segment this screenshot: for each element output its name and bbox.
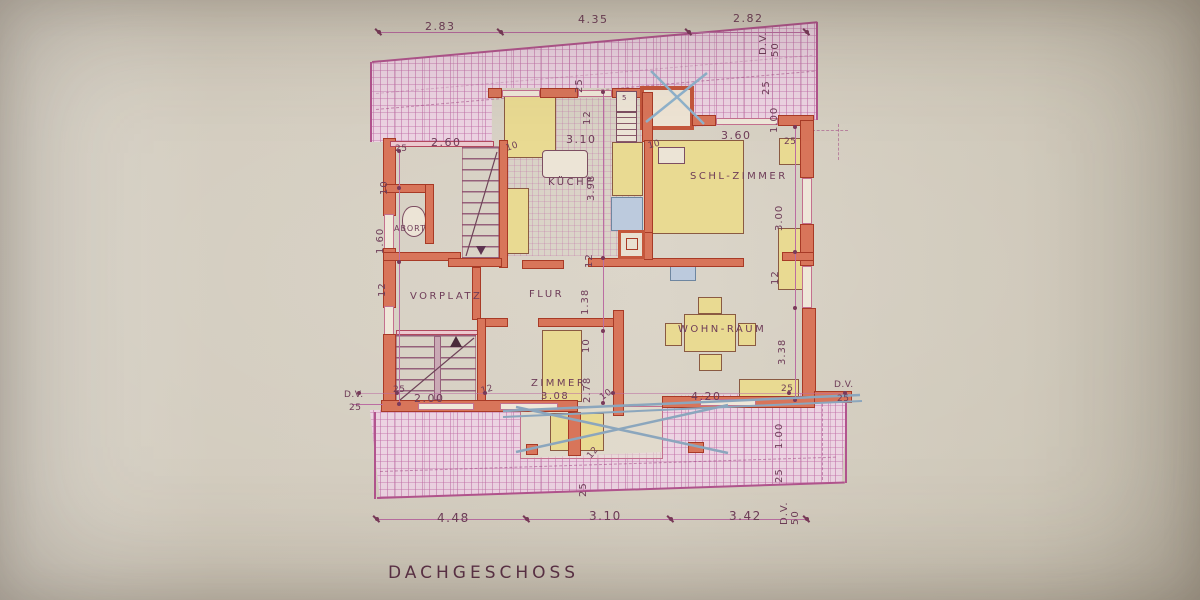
dim-label: 1.00 — [774, 423, 785, 449]
roof-edge-right — [816, 22, 818, 120]
wall-left — [383, 334, 396, 408]
dim-tick — [793, 250, 797, 254]
wall-right — [800, 120, 814, 178]
dim-label: 3.10 — [566, 133, 597, 146]
dim-tick — [793, 398, 797, 402]
wall-zimmer-top — [538, 318, 620, 327]
chair — [699, 354, 722, 371]
stove-door — [626, 238, 638, 250]
dim-tick — [601, 256, 605, 260]
wall-flur-north — [588, 258, 744, 267]
rug — [670, 266, 696, 281]
dim-label: 12 — [582, 110, 593, 125]
dim-label: 10 — [581, 338, 592, 353]
dashed-extent-line — [822, 394, 823, 480]
balcony-post — [568, 412, 581, 456]
dim-label: 12 — [377, 282, 388, 297]
dim-label: 3.38 — [777, 339, 788, 365]
roof-edge-bottom-right — [845, 392, 847, 483]
dim-label: 4.48 — [437, 511, 470, 525]
dim-label: 25 — [784, 137, 796, 147]
wall-kueche-top — [540, 88, 578, 98]
room-label-vorplatz: VORPLATZ — [410, 291, 482, 302]
room-label-wohnraum: WOHN-RAUM — [678, 324, 766, 335]
window — [384, 306, 394, 336]
dim-label: 1.38 — [580, 289, 591, 315]
wall-flur-north — [522, 260, 564, 269]
window — [802, 266, 812, 308]
dim-label: 25 — [349, 403, 361, 413]
shelf-count-label: 5 — [622, 94, 626, 102]
pantry-shelf — [616, 112, 637, 143]
kitchen-sink — [611, 197, 643, 231]
chair — [698, 297, 722, 314]
stairs-edge — [396, 330, 478, 335]
dim-label: 3.60 — [721, 129, 752, 142]
dim-label: 1.00 — [769, 107, 780, 133]
room-label-zimmer: ZIMMER — [531, 378, 586, 389]
dim-label: 25 — [393, 385, 405, 395]
dim-label: 25 — [761, 80, 772, 95]
plan-title: DACHGESCHOSS — [388, 563, 579, 583]
dim-label: 12 — [480, 384, 495, 397]
dim-label: D.V. — [344, 390, 364, 400]
wall-flur-north — [782, 252, 814, 261]
pantry-shelf — [616, 91, 637, 112]
dim-label: 4.35 — [578, 13, 609, 26]
floor-plan: 2.83 4.35 2.82 D.V. 50 25 2.60 10 3.10 1… — [0, 0, 1200, 600]
wall-kueche-right — [644, 232, 653, 260]
stairs-down-arrow — [476, 246, 486, 255]
dim-tick — [397, 260, 401, 264]
dim-line-right — [795, 126, 796, 402]
dashed-extent-line — [812, 130, 848, 131]
room-label-schlafzimmer: SCHL-ZIMMER — [690, 171, 788, 182]
dim-label: 12 — [770, 270, 781, 285]
dim-tick — [601, 329, 605, 333]
dim-label: 50 — [770, 42, 781, 57]
dim-label: 2.82 — [733, 12, 764, 25]
room-label-abort: ABORT — [394, 224, 426, 233]
dim-tick — [397, 402, 401, 406]
room-label-kueche: KÜCHE — [548, 177, 595, 188]
wall-kueche-top — [488, 88, 502, 98]
dim-tick — [601, 90, 605, 94]
dim-label: D.V. — [834, 380, 854, 390]
roof-edge-left — [370, 62, 372, 142]
wall-abort-right — [425, 184, 434, 244]
kitchen-table — [542, 150, 588, 178]
dim-label: 50 — [790, 510, 801, 525]
dim-line-center — [603, 92, 604, 404]
dim-label: 25 — [781, 384, 793, 394]
wall-kueche-right — [644, 140, 653, 234]
room-label-zimmer-size: 3.08 — [541, 391, 569, 402]
dim-tick — [397, 186, 401, 190]
stairs-rail — [434, 336, 441, 400]
wall-right — [802, 308, 816, 402]
dim-label: 3.10 — [589, 509, 622, 523]
window — [502, 90, 540, 97]
dim-label: 10 — [379, 180, 390, 195]
kitchen-counter — [612, 142, 643, 196]
dim-label: 25 — [837, 394, 849, 404]
dim-label: 3.00 — [774, 205, 785, 231]
room-label-flur: FLUR — [529, 289, 564, 300]
wall-zimmer-right — [613, 310, 624, 416]
kitchen-counter — [505, 188, 529, 254]
dim-label: 2.00 — [414, 392, 445, 405]
dim-label: 2.60 — [431, 136, 462, 149]
dim-tick — [793, 125, 797, 129]
dim-label: 25 — [574, 78, 585, 93]
wall-stairwell-bottom — [448, 258, 502, 267]
bed-pillow — [658, 147, 685, 164]
dim-label: 12 — [584, 253, 595, 268]
dim-label: D.V. — [758, 31, 769, 55]
dim-label: 25 — [578, 482, 589, 497]
balcony-post — [688, 442, 704, 453]
dim-tick — [793, 306, 797, 310]
wall-stairwell — [499, 140, 508, 268]
dim-label: 3.42 — [729, 509, 762, 523]
dim-label: 25 — [774, 468, 785, 483]
wall-schlafzimmer-top — [692, 115, 716, 126]
roof-edge-bottom-left — [374, 412, 376, 499]
dim-label: 1.60 — [375, 228, 386, 254]
dim-label: D.V. — [779, 501, 790, 525]
dim-label: 4.20 — [691, 390, 722, 403]
wall-kueche-right — [642, 92, 653, 142]
balcony-post — [526, 444, 538, 455]
drawing-sheet: 2.83 4.35 2.82 D.V. 50 25 2.60 10 3.10 1… — [0, 0, 1200, 600]
dim-label: 10 — [598, 387, 614, 402]
window — [802, 178, 812, 224]
stairs-up-arrow — [450, 336, 462, 347]
dim-label: 25 — [395, 144, 407, 154]
dim-label: 2.83 — [425, 20, 456, 33]
window — [500, 403, 558, 410]
